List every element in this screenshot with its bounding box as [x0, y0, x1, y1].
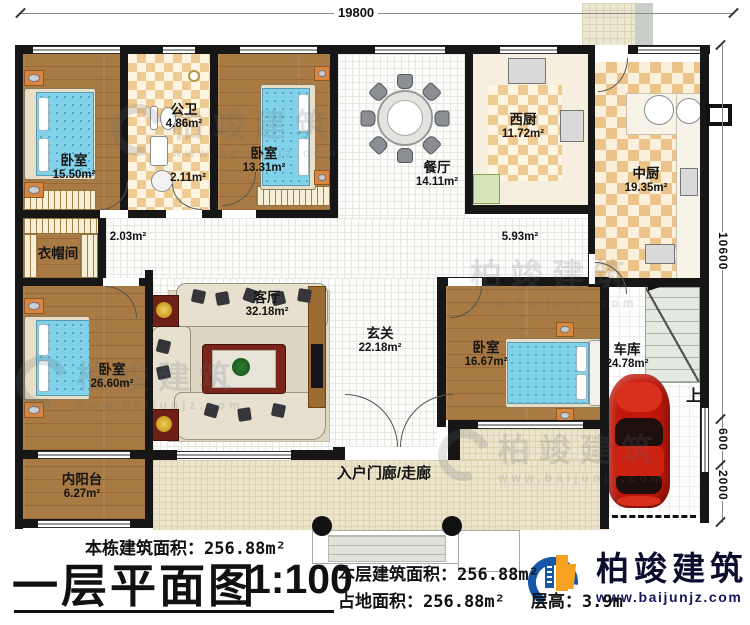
car-trunk	[617, 496, 661, 506]
wall	[98, 210, 106, 286]
label-living: 客厅32.18m²	[246, 290, 289, 319]
cushion	[297, 288, 312, 303]
window	[33, 46, 120, 54]
toilet-tank	[150, 106, 158, 130]
window	[163, 46, 195, 54]
window	[375, 46, 445, 54]
nightstand	[314, 170, 330, 185]
wall	[145, 278, 153, 528]
lamp	[156, 302, 172, 318]
label-mid-kitchen: 中厨19.35m²	[625, 166, 668, 195]
dim-tick	[715, 40, 726, 51]
nightstand	[24, 298, 44, 314]
door-gap	[345, 447, 448, 460]
label-cloakroom: 衣帽间	[38, 246, 79, 262]
cushion	[156, 365, 171, 380]
label-balcony: 内阳台6.27m²	[62, 472, 103, 501]
label-bedroom-bottom-left: 卧室26.60m²	[91, 362, 134, 391]
kitchen-sink	[508, 58, 546, 84]
cushion	[215, 291, 230, 306]
cushion	[271, 403, 286, 418]
label-garage: 车库24.78m²	[606, 342, 649, 371]
dining-chair	[435, 111, 450, 127]
column	[312, 516, 332, 536]
garage-door	[612, 515, 696, 519]
closet	[23, 234, 38, 278]
door-gap	[222, 210, 256, 218]
title-underline	[14, 610, 334, 613]
washbasin	[150, 136, 168, 166]
window	[478, 421, 583, 429]
window	[701, 408, 709, 472]
label-porch: 入户门廊/走廊	[337, 465, 431, 483]
stove	[560, 110, 584, 142]
door-gap	[595, 45, 628, 54]
wall	[210, 53, 218, 218]
bed-pillow	[38, 97, 49, 131]
stairs-up-label: 上	[686, 382, 702, 406]
wall	[465, 53, 473, 213]
label-bedroom-top-mid: 卧室13.31m²	[243, 146, 286, 175]
brand-name: 柏竣建筑	[596, 552, 748, 585]
footprint-and-height: 占地面积：256.88m²层高：3.9m	[338, 587, 623, 612]
tv	[311, 344, 323, 388]
floor-porch	[457, 429, 608, 460]
label-shower-area: 2.11m²	[170, 172, 206, 186]
wall	[600, 277, 609, 529]
plant	[232, 358, 250, 376]
door-gap	[100, 210, 128, 218]
dim-tick	[715, 460, 726, 471]
stove	[645, 244, 675, 264]
dimension-right-total: 10600	[716, 232, 730, 270]
nightstand	[556, 322, 574, 337]
closet	[23, 218, 100, 234]
car-rear-window	[616, 476, 662, 494]
label-hall-right: 5.93m²	[502, 231, 538, 245]
car-roof	[614, 446, 664, 476]
bed-pillow	[576, 374, 587, 400]
window	[638, 46, 700, 54]
door-gap	[103, 278, 139, 286]
bed-pillow	[298, 94, 309, 132]
terrace	[582, 3, 635, 45]
nightstand	[24, 182, 44, 198]
car-windshield	[615, 418, 663, 446]
dim-line	[722, 45, 723, 523]
label-west-kitchen: 西厨11.72m²	[502, 112, 544, 141]
window	[38, 451, 130, 459]
door-gap	[166, 210, 202, 218]
terrace-edge	[635, 3, 653, 45]
towel-ring	[188, 70, 200, 82]
floor-grid	[106, 218, 588, 278]
wall	[153, 450, 177, 460]
floor-plan: 柏竣建筑 www.baijunjz.com 柏竣建筑 www.baijunjz.…	[0, 0, 750, 625]
label-hall-small: 2.03m²	[110, 231, 146, 245]
bed-pillow	[576, 346, 587, 372]
label-dining: 餐厅14.11m²	[416, 160, 458, 189]
wall	[145, 270, 153, 282]
dining-chair	[397, 148, 413, 163]
cutting-board	[473, 174, 500, 204]
dim-tick	[715, 414, 726, 425]
closet	[80, 234, 98, 278]
bed-pillow	[38, 360, 49, 392]
dimension-right-step: 600	[716, 428, 730, 451]
footprint: 占地面积：256.88m²	[338, 592, 505, 611]
floor-area: 本层建筑面积：256.88m²	[338, 560, 539, 585]
bed-pillow	[38, 138, 49, 172]
flue	[706, 104, 732, 126]
dimension-right-porch: 2000	[716, 470, 730, 501]
wall	[465, 205, 595, 214]
dining-chair	[397, 74, 413, 89]
window	[177, 451, 291, 459]
door-gap	[448, 278, 482, 286]
window	[500, 46, 557, 54]
basin	[676, 98, 702, 124]
lamp	[156, 416, 172, 432]
cushion	[191, 289, 206, 304]
label-foyer: 玄关22.18m²	[359, 326, 402, 355]
bed-pillow	[298, 138, 309, 176]
dim-tick	[715, 517, 726, 528]
floor-height: 层高：3.9m	[531, 592, 623, 611]
window	[240, 46, 317, 54]
nightstand	[314, 66, 330, 81]
label-bedroom-top-left: 卧室15.50m²	[53, 153, 96, 182]
kitchen-sink	[680, 168, 698, 196]
nightstand	[24, 402, 44, 418]
wall	[291, 450, 338, 460]
stairs	[645, 287, 700, 383]
bed-pillow	[38, 324, 49, 356]
cushion	[237, 407, 252, 422]
nightstand	[24, 70, 44, 86]
label-bedroom-bottom-right: 卧室16.67m²	[465, 340, 508, 369]
dining-chair	[361, 111, 376, 127]
dining-table-top	[387, 100, 423, 136]
basin	[644, 95, 674, 125]
label-bath: 公卫4.86m²	[166, 102, 202, 131]
dimension-top: 19800	[334, 5, 378, 20]
stair-arrow	[648, 283, 660, 291]
column	[442, 516, 462, 536]
window	[38, 520, 130, 528]
wall	[588, 53, 595, 287]
plan-title: 一层平面图	[12, 550, 257, 616]
wall	[330, 53, 338, 215]
car-hood	[616, 382, 662, 412]
